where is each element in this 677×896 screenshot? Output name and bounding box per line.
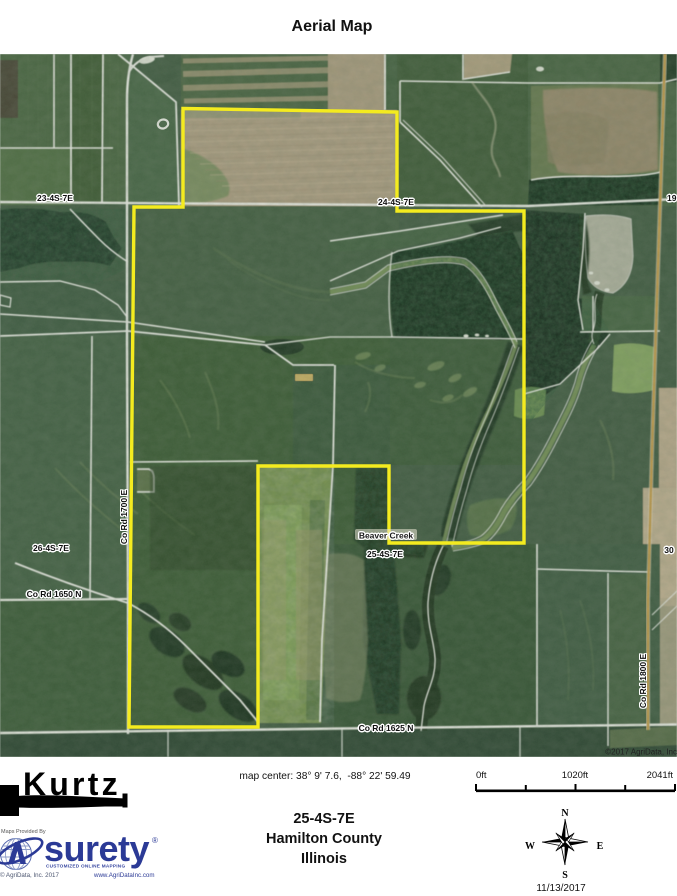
svg-text:25-4S-7E: 25-4S-7E	[367, 549, 403, 559]
svg-text:2041ft: 2041ft	[647, 770, 674, 781]
svg-text:23-4S-7E: 23-4S-7E	[37, 193, 73, 203]
svg-text:30: 30	[664, 545, 674, 555]
svg-text:Co Rd 1625 N: Co Rd 1625 N	[359, 723, 414, 733]
svg-text:Co Rd 1650 N: Co Rd 1650 N	[27, 589, 82, 599]
svg-text:0ft: 0ft	[476, 770, 487, 781]
svg-text:Co Rd 1700 E: Co Rd 1700 E	[119, 490, 129, 545]
svg-text:W: W	[525, 841, 535, 852]
svg-text:Beaver Creek: Beaver Creek	[359, 531, 414, 541]
svg-text:26-4S-7E: 26-4S-7E	[33, 543, 69, 553]
svg-text:E: E	[597, 841, 604, 852]
svg-text:Co Rd 1800 E: Co Rd 1800 E	[638, 654, 648, 709]
svg-text:24-4S-7E: 24-4S-7E	[378, 197, 414, 207]
svg-text:CUSTOMIZED ONLINE MAPPING: CUSTOMIZED ONLINE MAPPING	[46, 864, 125, 869]
svg-text:N: N	[561, 808, 569, 819]
svg-text:www.AgriDataInc.com: www.AgriDataInc.com	[93, 872, 155, 879]
svg-text:1020ft: 1020ft	[562, 770, 589, 781]
svg-text:®: ®	[152, 836, 158, 845]
svg-text:© AgriData, Inc. 2017: © AgriData, Inc. 2017	[0, 872, 59, 879]
svg-text:S: S	[562, 870, 568, 881]
svg-text:©2017 AgriData, Inc: ©2017 AgriData, Inc	[605, 748, 677, 757]
svg-text:19: 19	[667, 193, 677, 203]
